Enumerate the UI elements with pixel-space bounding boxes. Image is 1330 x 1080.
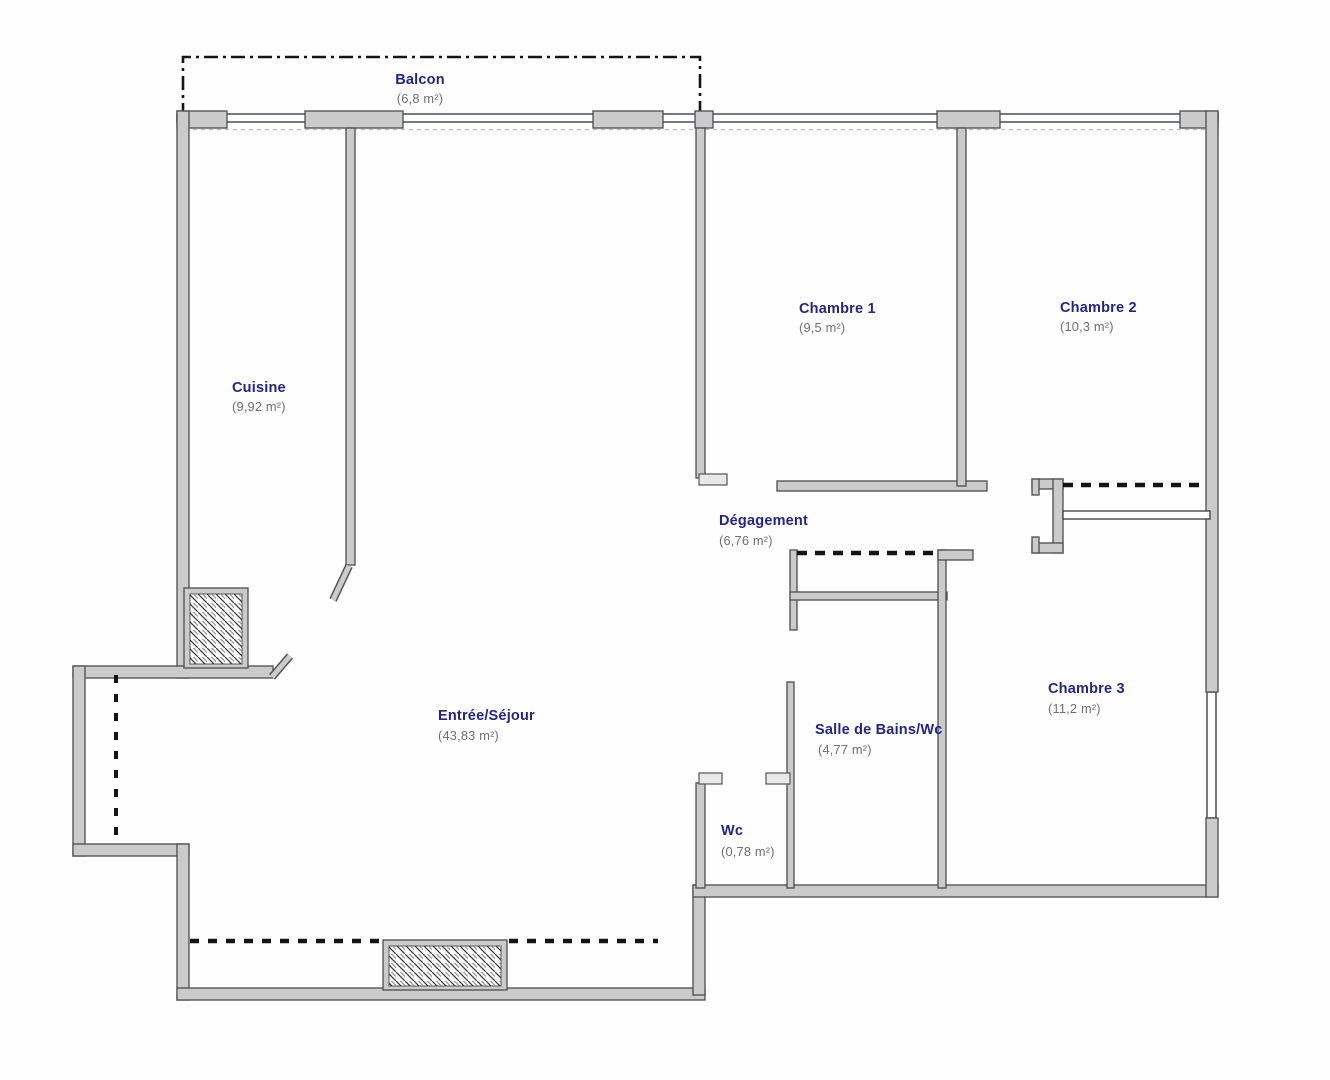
- right-section-bottom-wall: [693, 885, 1218, 897]
- kitchen-duct: [184, 588, 248, 668]
- room-name: Dégagement: [719, 513, 808, 529]
- interior-walls: [346, 128, 1210, 888]
- room-label-chambre1: Chambre 1 (9,5 m²): [799, 301, 876, 335]
- wc-door-jamb-left: [699, 773, 722, 784]
- room-area: (11,2 m²): [1048, 701, 1101, 716]
- wc-west-wall: [696, 783, 705, 888]
- bath-west-wall-upper: [790, 550, 797, 630]
- bath-west-wall-lower: [787, 682, 794, 888]
- room-name: Chambre 3: [1048, 681, 1125, 697]
- room-area: (6,76 m²): [719, 533, 773, 548]
- chambre1-chambre2-divider: [957, 128, 966, 486]
- right-wall-lower: [1206, 818, 1218, 897]
- chambre3-north-wall: [1063, 511, 1210, 519]
- room-label-balcon: Balcon (6,8 m²): [395, 72, 445, 106]
- entry-recess-left-wall: [73, 666, 85, 856]
- entry-recess-bottom-wall: [73, 844, 189, 856]
- entry-door-leaf: [272, 656, 290, 677]
- room-area: (9,5 m²): [799, 320, 845, 335]
- room-area: (43,83 m²): [438, 728, 499, 743]
- floorplan: Balcon (6,8 m²) Cuisine (9,92 m²) Chambr…: [0, 0, 1330, 1080]
- room-label-salle-de-bains: Salle de Bains/Wc (4,77 m²): [815, 722, 943, 757]
- room-label-chambre3: Chambre 3 (11,2 m²): [1048, 681, 1125, 716]
- floorplan-drawing: Balcon (6,8 m²) Cuisine (9,92 m²) Chambr…: [0, 0, 1330, 1080]
- jamb-hook: [1032, 537, 1039, 553]
- room-name: Entrée/Séjour: [438, 708, 535, 724]
- room-name: Chambre 1: [799, 301, 876, 317]
- chambre1-south-wall: [777, 481, 987, 491]
- step-wall: [693, 885, 705, 995]
- room-area: (10,3 m²): [1060, 319, 1114, 334]
- room-area: (0,78 m²): [721, 844, 775, 859]
- jamb-hook: [1032, 479, 1039, 495]
- room-label-wc: Wc (0,78 m²): [721, 823, 775, 859]
- wall-pier: [695, 111, 713, 128]
- wall-pier: [937, 111, 1000, 128]
- room-name: Balcon: [395, 72, 445, 88]
- right-wall-upper: [1206, 111, 1218, 692]
- chambre3-window: [1207, 692, 1216, 818]
- duct-hatch: [389, 946, 501, 986]
- room-area: (4,77 m²): [818, 742, 872, 757]
- room-label-chambre2: Chambre 2 (10,3 m²): [1060, 300, 1137, 334]
- kitchen-wall: [346, 128, 355, 565]
- left-lower-wall: [177, 844, 189, 1000]
- room-area: (6,8 m²): [397, 91, 443, 106]
- duct-hatch: [190, 594, 242, 664]
- room-name: Cuisine: [232, 380, 286, 396]
- room-label-entree-sejour: Entrée/Séjour (43,83 m²): [438, 708, 535, 743]
- degagement-door-jamb: [699, 474, 727, 485]
- room-name: Wc: [721, 823, 743, 839]
- room-name: Salle de Bains/Wc: [815, 722, 943, 738]
- degagement-closet-back-wall: [790, 592, 947, 600]
- room-label-cuisine: Cuisine (9,92 m²): [232, 380, 286, 414]
- bath-east-wall-top: [938, 550, 973, 560]
- kitchen-door-leaf: [333, 566, 349, 600]
- sejour-divider-wall-upper: [696, 128, 705, 478]
- chambre2-door-jamb-post: [1053, 479, 1063, 553]
- sejour-duct: [383, 940, 507, 990]
- outer-walls: [73, 111, 1218, 1000]
- room-name: Chambre 2: [1060, 300, 1137, 316]
- wc-door-jamb-right: [766, 773, 790, 784]
- room-label-degagement: Dégagement (6,76 m²): [719, 513, 808, 548]
- wall-pier: [593, 111, 663, 128]
- bath-east-wall: [938, 550, 946, 888]
- room-area: (9,92 m²): [232, 399, 286, 414]
- wall-pier: [305, 111, 403, 128]
